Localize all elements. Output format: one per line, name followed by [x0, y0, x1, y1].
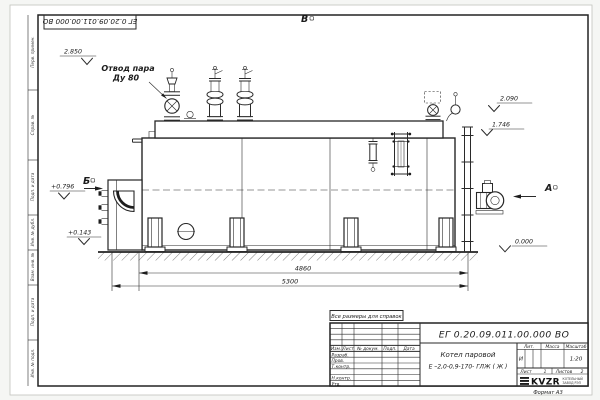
col-date: Дата — [402, 346, 415, 352]
row-tcontrol: Т.контр. — [332, 364, 351, 370]
svg-text:1.746: 1.746 — [492, 122, 510, 129]
drawing-designation: ЕГ 0.20.09.011.00.000 ВО — [439, 330, 570, 341]
view-right-letter: А — [544, 183, 552, 194]
margin-label: Инв. № дубл. — [30, 218, 35, 247]
scale-value: 1:20 — [570, 357, 583, 363]
lit-header: Лит. — [523, 344, 534, 350]
scale-header: Масштаб — [566, 344, 587, 350]
svg-text:+0.796: +0.796 — [51, 184, 74, 191]
row-approved: Утв. — [332, 381, 341, 387]
sheet-number: 1 — [544, 369, 547, 375]
dimension-inner: 4860 — [295, 265, 312, 273]
col-izm: Изм. — [331, 346, 341, 352]
margin-label: Инв. № подл. — [30, 349, 35, 378]
logo-subtext-2: ЗАВОД РЭП — [563, 381, 582, 385]
row-ncontrol: Н.контр. — [332, 376, 352, 382]
col-list: Лист — [341, 346, 354, 352]
drawing-sheet: Перв. примен. Справ. № Подп. и дата Инв.… — [0, 0, 600, 400]
boiler-drawing-svg: Перв. примен. Справ. № Подп. и дата Инв.… — [0, 0, 600, 400]
col-sign: Подп. — [383, 346, 396, 352]
svg-text:2.090: 2.090 — [500, 96, 518, 103]
row-checked: Пров. — [332, 358, 345, 364]
foot — [341, 218, 361, 252]
dimension-outer: 5300 — [282, 278, 299, 286]
sheets-number: 2 — [581, 369, 584, 375]
svg-text:0.000: 0.000 — [515, 239, 533, 246]
margin-label: Подп. и дата — [30, 172, 35, 201]
foot — [227, 218, 247, 252]
steam-drum — [142, 121, 443, 138]
title-block: Все размеры для справок Изм. Лист № доку… — [330, 311, 588, 396]
corner-designation-text: ЕГ 0.20.09.011.00.000 ВО — [42, 17, 137, 26]
logo-text: KVZR — [531, 378, 560, 388]
sheet-label: Лист — [519, 369, 532, 375]
reference-note: Все размеры для справок — [331, 314, 402, 320]
margin-label: Справ. № — [30, 114, 35, 135]
sheets-label: Листов — [555, 369, 573, 375]
margin-label: Перв. примен. — [30, 36, 35, 67]
svg-text:+0.143: +0.143 — [68, 230, 91, 237]
mass-header: Масса — [546, 344, 560, 350]
boiler-body — [133, 138, 456, 250]
view-left-letter: Б — [83, 176, 90, 187]
foot — [145, 218, 165, 252]
callout-line2: Ду 80 — [112, 74, 140, 83]
format-label: Формат А3 — [533, 390, 563, 396]
margin-label: Подп. и дата — [30, 297, 35, 326]
margin-label: Взам. инв. № — [30, 252, 35, 281]
foot — [436, 218, 456, 252]
logo-subtext-1: КОТЕЛЬНЫЙ — [563, 376, 584, 381]
product-name: Котел паровой — [441, 351, 496, 359]
svg-text:2.850: 2.850 — [64, 49, 82, 56]
view-top-letter: В — [301, 14, 308, 25]
callout-line1: Отвод пара — [101, 64, 154, 73]
product-model: Е –2,0-0,9-170- ГЛЖ ( Ж ) — [429, 364, 508, 371]
col-doc: № докум. — [356, 346, 379, 352]
ground-hatch — [98, 253, 478, 261]
row-developed: Разраб. — [332, 352, 349, 358]
